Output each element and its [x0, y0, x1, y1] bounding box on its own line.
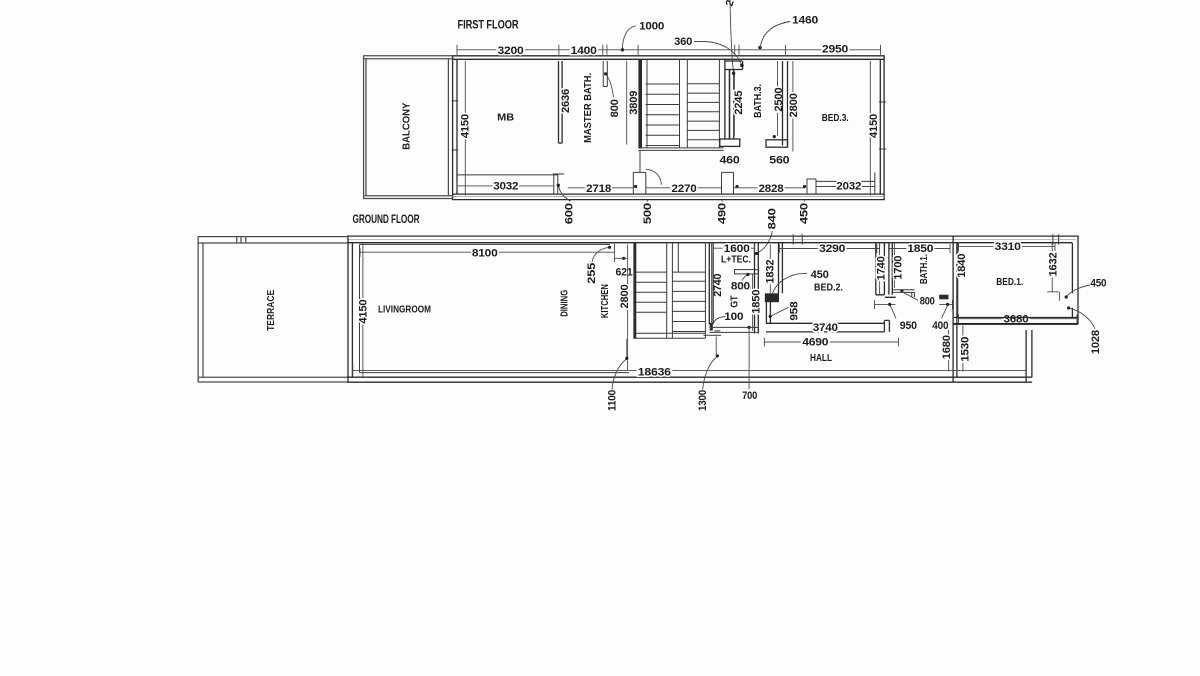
svg-text:3290: 3290 [819, 243, 845, 255]
svg-text:400: 400 [932, 320, 948, 332]
svg-text:KITCHEN: KITCHEN [600, 284, 611, 318]
svg-text:1832: 1832 [765, 259, 777, 283]
svg-text:1100: 1100 [606, 390, 618, 411]
svg-text:8100: 8100 [472, 247, 498, 259]
svg-text:255: 255 [586, 263, 598, 284]
svg-text:BED.3.: BED.3. [822, 113, 849, 124]
svg-text:1632: 1632 [1047, 252, 1059, 276]
svg-text:600: 600 [564, 203, 576, 224]
svg-text:800: 800 [731, 280, 750, 292]
svg-text:1400: 1400 [571, 45, 597, 57]
svg-text:4150: 4150 [460, 114, 472, 138]
svg-text:BED.1.: BED.1. [996, 277, 1023, 288]
svg-text:2032: 2032 [836, 180, 861, 192]
svg-text:1850: 1850 [907, 243, 933, 255]
svg-text:1000: 1000 [639, 21, 664, 33]
svg-text:490: 490 [717, 203, 729, 224]
svg-text:BATH.1.: BATH.1. [919, 254, 930, 284]
svg-text:BED.2.: BED.2. [814, 283, 843, 294]
svg-text:2270: 2270 [672, 183, 697, 195]
svg-text:GROUND FLOOR: GROUND FLOOR [353, 212, 420, 226]
svg-text:700: 700 [742, 390, 757, 402]
svg-text:2718: 2718 [586, 183, 611, 195]
svg-text:3032: 3032 [493, 181, 518, 193]
svg-text:1530: 1530 [959, 336, 971, 361]
svg-text:3200: 3200 [498, 45, 524, 57]
svg-text:2245: 2245 [733, 90, 745, 114]
svg-text:450: 450 [799, 203, 811, 224]
svg-text:BALCONY: BALCONY [402, 102, 413, 150]
svg-text:1028: 1028 [1090, 330, 1102, 354]
svg-text:LIVINGROOM: LIVINGROOM [378, 304, 431, 315]
svg-text:1700: 1700 [893, 255, 905, 279]
svg-text:2828: 2828 [759, 183, 784, 195]
svg-text:2636: 2636 [560, 89, 572, 113]
svg-text:1600: 1600 [724, 243, 750, 255]
svg-text:800: 800 [920, 296, 935, 308]
svg-text:800: 800 [609, 99, 621, 117]
svg-text:1840: 1840 [956, 253, 968, 277]
svg-text:460: 460 [720, 154, 740, 166]
svg-text:3809: 3809 [628, 90, 640, 114]
svg-text:HALL: HALL [810, 353, 832, 364]
svg-text:450: 450 [811, 269, 829, 281]
svg-text:GT: GT [729, 296, 740, 308]
svg-text:2800: 2800 [788, 93, 800, 117]
svg-text:840: 840 [767, 208, 779, 229]
svg-text:3310: 3310 [995, 241, 1021, 253]
svg-text:450: 450 [1090, 277, 1106, 289]
svg-text:TERRACE: TERRACE [266, 289, 277, 330]
svg-text:MASTER BATH.: MASTER BATH. [583, 73, 594, 143]
svg-text:3740: 3740 [813, 322, 838, 334]
svg-text:1460: 1460 [792, 14, 818, 26]
svg-text:BATH.3.: BATH.3. [753, 84, 764, 118]
svg-text:18636: 18636 [638, 366, 671, 378]
svg-text:4150: 4150 [868, 114, 880, 138]
svg-text:4150: 4150 [357, 299, 369, 323]
svg-text:621: 621 [616, 266, 633, 278]
svg-text:360: 360 [674, 36, 692, 48]
svg-text:560: 560 [769, 154, 789, 166]
svg-text:1850: 1850 [750, 289, 762, 313]
svg-text:FIRST FLOOR: FIRST FLOOR [458, 18, 519, 32]
svg-text:2950: 2950 [822, 43, 848, 55]
svg-text:MB: MB [497, 113, 514, 124]
svg-text:2740: 2740 [712, 274, 724, 297]
svg-text:L+TEC.: L+TEC. [721, 254, 751, 265]
svg-text:2800: 2800 [619, 284, 631, 308]
svg-text:100: 100 [724, 311, 743, 323]
svg-text:950: 950 [900, 320, 917, 332]
svg-text:DINING: DINING [560, 290, 571, 317]
svg-text:1740: 1740 [875, 256, 887, 280]
svg-text:958: 958 [788, 301, 800, 320]
svg-text:500: 500 [642, 203, 654, 224]
svg-text:1680: 1680 [941, 335, 953, 359]
svg-text:1300: 1300 [697, 390, 709, 411]
svg-text:4690: 4690 [802, 337, 828, 349]
